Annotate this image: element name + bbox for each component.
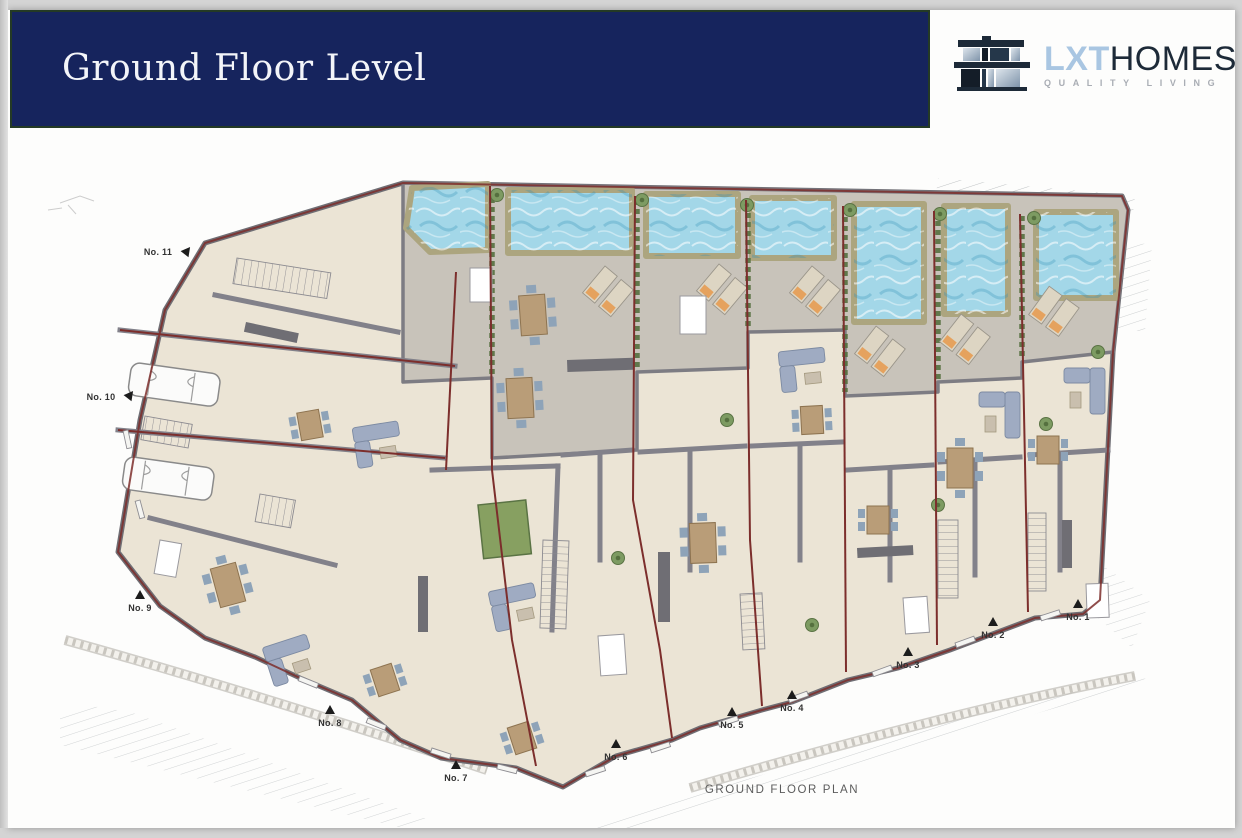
unit-marker-icon	[325, 705, 335, 714]
sketch-mark	[48, 196, 94, 214]
unit-label-text: No. 2	[981, 630, 1005, 640]
screenshot: No. 1 No. 2 No. 3 No. 4 No. 5 No. 6	[0, 0, 1242, 828]
unit-label-11: No. 11	[144, 244, 194, 257]
unit-marker-icon	[181, 244, 194, 257]
unit-label-text: No. 7	[444, 773, 468, 783]
pool-4	[752, 198, 834, 258]
plan-caption: GROUND FLOOR PLAN	[705, 784, 859, 796]
logo-house-icon	[952, 36, 1034, 94]
pool-5	[646, 194, 738, 256]
logo-text: LXTHOMES QUALITY LIVING	[1044, 36, 1237, 88]
unit-label-text: No. 8	[318, 718, 342, 728]
page-title: Ground Floor Level	[12, 12, 928, 89]
pool-3	[854, 204, 924, 322]
page-edge-shadow	[0, 0, 8, 828]
unit-label-text: No. 11	[144, 247, 172, 257]
pool-7	[406, 184, 488, 252]
logo-lxt: LXT	[1044, 40, 1110, 78]
logo-homes: HOMES	[1110, 40, 1237, 78]
pool-6	[508, 190, 632, 253]
document-page: No. 1 No. 2 No. 3 No. 4 No. 5 No. 6	[8, 10, 1235, 828]
company-logo: LXTHOMES QUALITY LIVING	[952, 36, 1237, 94]
unit-label-text: No. 3	[896, 660, 920, 670]
logo-tagline: QUALITY LIVING	[1044, 78, 1237, 88]
unit-label-text: No. 5	[720, 720, 744, 730]
courtyard-garden	[478, 500, 531, 559]
floor-plan-drawing: No. 1 No. 2 No. 3 No. 4 No. 5 No. 6	[8, 10, 1242, 838]
pool-1	[1036, 212, 1116, 298]
unit-label-text: No. 9	[128, 603, 152, 613]
pool-2	[944, 206, 1008, 314]
unit-label-text: No. 6	[604, 752, 628, 762]
logo-wordmark: LXTHOMES	[1044, 44, 1237, 74]
unit-label-text: No. 1	[1066, 612, 1090, 622]
unit-label-text: No. 4	[780, 703, 804, 713]
unit-marker-icon	[135, 590, 145, 599]
slide-header: Ground Floor Level	[10, 10, 930, 128]
unit-label-text: No. 10	[87, 392, 116, 402]
